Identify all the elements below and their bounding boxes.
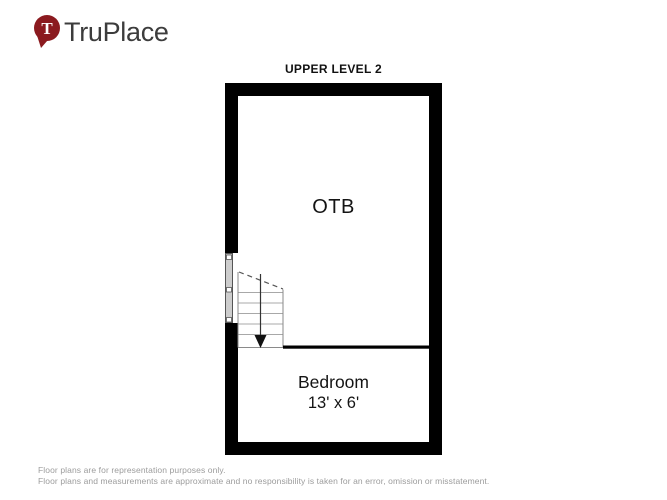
plan-title: UPPER LEVEL 2 [225, 62, 442, 76]
disclaimer-line-1: Floor plans are for representation purpo… [38, 465, 489, 476]
floor-plan-page: T TruPlace UPPER LEVEL 2 OTB Bedroom 13'… [0, 0, 667, 500]
truplace-pin-icon: T [33, 15, 61, 49]
room-label-otb: OTB [225, 196, 442, 219]
pin-letter: T [41, 19, 53, 38]
room-label-bedroom: Bedroom 13' x 6' [225, 372, 442, 414]
disclaimer-line-2: Floor plans and measurements are approxi… [38, 476, 489, 487]
truplace-logo: T TruPlace [33, 15, 169, 49]
logo-wordmark: TruPlace [64, 15, 169, 49]
bedroom-dimensions: 13' x 6' [225, 393, 442, 414]
disclaimer: Floor plans are for representation purpo… [38, 465, 489, 488]
bedroom-name: Bedroom [225, 372, 442, 393]
